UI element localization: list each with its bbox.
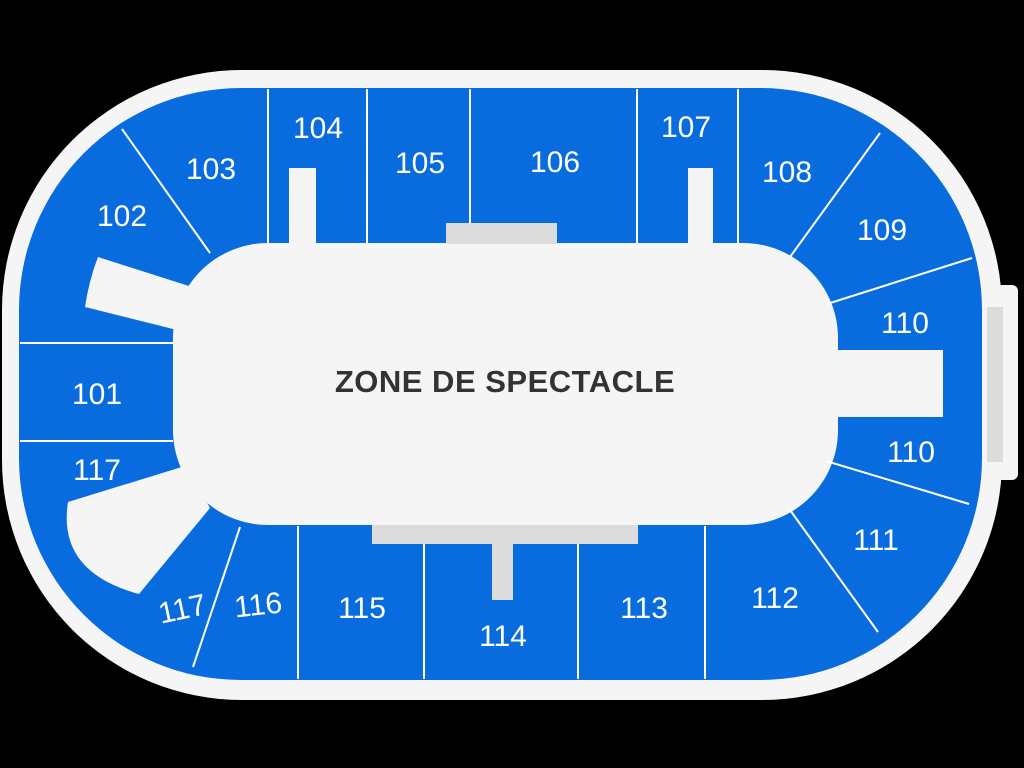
section-label-115[interactable]: 115 [338,592,386,625]
section-label-110-upper[interactable]: 110 [881,307,929,340]
section-label-111[interactable]: 111 [853,524,899,557]
section-label-116[interactable]: 116 [233,587,284,625]
section-label-106[interactable]: 106 [530,146,580,179]
section-label-114[interactable]: 114 [479,620,527,653]
section-label-109[interactable]: 109 [857,214,907,247]
section-label-103[interactable]: 103 [186,153,236,186]
section-label-102[interactable]: 102 [97,200,147,233]
venue-seat-map: 101 102 103 104 105 106 107 108 109 110 … [0,0,1024,768]
right-stage-tab [987,307,1003,462]
section-label-104[interactable]: 104 [293,112,343,145]
section-label-107[interactable]: 107 [661,111,711,144]
seat-map-page: 101 102 103 104 105 106 107 108 109 110 … [0,0,1024,768]
section-label-117-upper[interactable]: 117 [73,454,121,487]
section-label-108[interactable]: 108 [762,156,812,189]
section-label-110-lower[interactable]: 110 [887,436,935,469]
section-104-tunnel [289,168,316,245]
right-corridor [810,350,943,417]
section-label-112[interactable]: 112 [751,582,799,615]
section-107-tunnel [688,168,713,245]
section-label-113[interactable]: 113 [620,592,668,625]
section-label-105[interactable]: 105 [395,147,445,180]
top-stage-tab [446,223,557,244]
section-label-101[interactable]: 101 [72,378,122,411]
floor-zone-label: ZONE DE SPECTACLE [335,364,675,399]
